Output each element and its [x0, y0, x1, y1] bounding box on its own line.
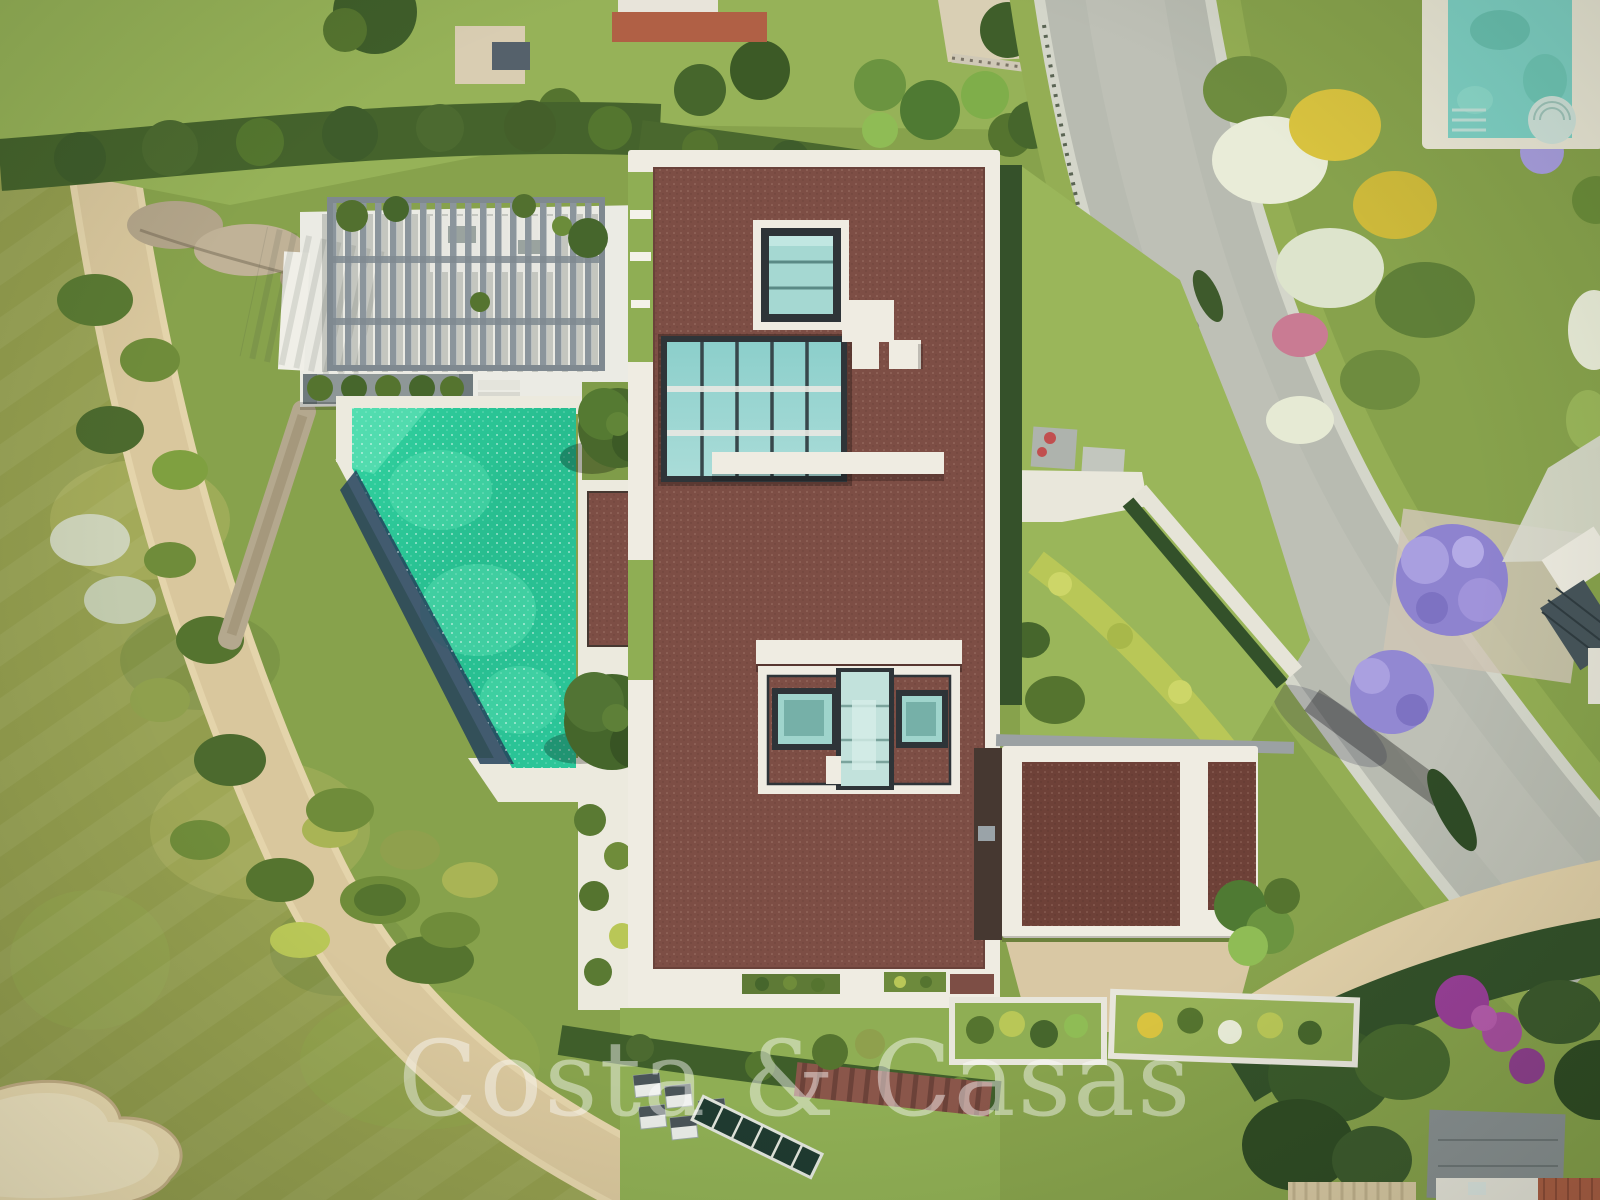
skylight: [1468, 1182, 1486, 1195]
sun-lounger: [630, 252, 651, 261]
ac-unit: [978, 826, 995, 841]
lawn-notch: [628, 560, 654, 680]
garden-bed: [952, 1000, 1104, 1062]
sun-lounger: [631, 300, 650, 308]
sun-lounger: [630, 210, 651, 219]
garden-bed: [1111, 992, 1357, 1064]
aerial-photo-svg: [0, 0, 1600, 1200]
neighbour-house: [618, 0, 718, 14]
jacaranda-tree: [1350, 650, 1434, 734]
jacaranda-tree: [1396, 524, 1508, 636]
small-skylight: [753, 220, 849, 330]
lawn-notch: [628, 172, 654, 362]
lower-skylights: [756, 640, 962, 794]
neighbour-terrace: [612, 12, 767, 42]
skylight-beam: [756, 640, 962, 664]
atrium-beam: [712, 452, 944, 474]
aerial-photograph: Costa & Casas: [0, 0, 1600, 1200]
spa-tub: [492, 42, 530, 70]
entry-steps: [1031, 427, 1078, 470]
building-gap: [974, 748, 1002, 940]
roman-steps: [1528, 96, 1576, 144]
villa-side-hedge: [998, 165, 1022, 705]
neighbour-pool: [1422, 0, 1600, 149]
